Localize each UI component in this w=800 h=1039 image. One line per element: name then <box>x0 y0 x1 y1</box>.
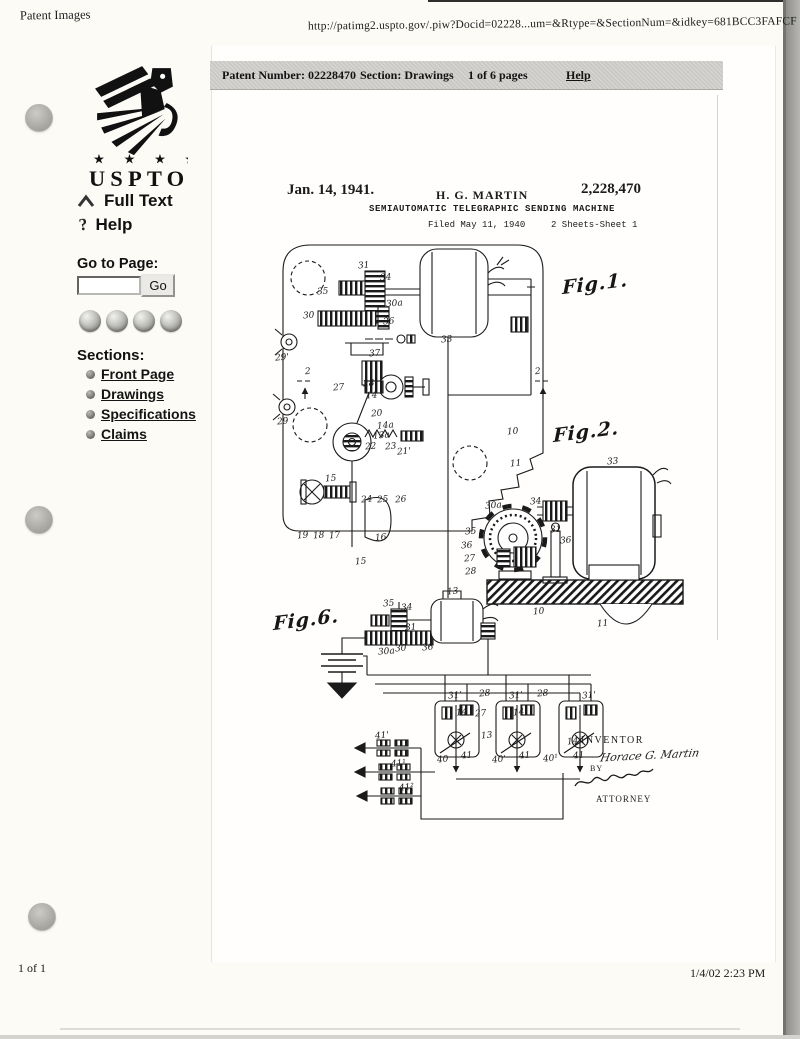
ref-numeral: 30a <box>386 298 404 309</box>
ref-numeral: 19 <box>297 531 309 542</box>
patent-number-label: Patent Number: 02228470 <box>222 68 356 83</box>
ref-numeral: 31' <box>509 690 524 701</box>
sheet-filed-line: Filed May 11, 1940 <box>428 220 525 230</box>
ref-numeral: 30a <box>485 500 503 511</box>
inventor-caption: INVENTOR <box>581 735 644 746</box>
ref-numeral: 18 <box>313 531 325 542</box>
caret-up-icon <box>76 193 96 209</box>
ref-numeral: 13 <box>481 731 493 742</box>
ref-numeral: 2 <box>535 367 542 377</box>
uspto-logo: ★ ★ ★ ★ USPTO <box>84 62 188 190</box>
ref-numeral: 10 <box>507 427 519 438</box>
nav-balls <box>79 310 182 332</box>
ref-numeral: 2 <box>305 367 312 377</box>
bullet-icon <box>86 410 95 419</box>
toolbar-help-link[interactable]: Help <box>566 68 591 83</box>
full-text-label: Full Text <box>104 191 173 211</box>
ref-numeral: 15 <box>325 474 337 485</box>
ref-numeral: 15 <box>355 557 367 568</box>
attorney-caption: ATTORNEY <box>596 794 651 804</box>
sidebar-item-specifications[interactable]: Specifications <box>86 406 196 422</box>
sections-heading: Sections: <box>77 347 145 364</box>
ref-numeral: 13a <box>373 430 391 441</box>
go-button[interactable]: Go <box>141 274 175 297</box>
ref-numeral: 40¹ <box>543 753 559 764</box>
ref-numeral: 34 <box>401 603 413 614</box>
ref-numeral: 36 <box>461 541 473 552</box>
ref-numeral: 13 <box>447 587 459 598</box>
ref-numeral: 33 <box>441 335 453 346</box>
sidebar-item-front-page[interactable]: Front Page <box>86 366 196 382</box>
ref-numeral: 41 <box>519 751 531 762</box>
sheet-title: SEMIAUTOMATIC TELEGRAPHIC SENDING MACHIN… <box>369 204 615 214</box>
patent-toolbar: Patent Number: 02228470 Section: Drawing… <box>210 61 723 90</box>
ref-numeral: 27 <box>333 383 345 394</box>
ref-numeral: 21' <box>397 446 412 457</box>
ref-numeral: 10 <box>533 607 545 618</box>
ref-numeral: 26 <box>395 495 407 506</box>
ref-numeral: 40' <box>492 754 507 765</box>
ref-numeral: 36 <box>560 536 572 547</box>
ref-numeral: 35 <box>317 287 329 298</box>
logo-text: USPTO <box>89 166 185 190</box>
ref-numeral: 22 <box>365 442 377 453</box>
sidebar-item-label: Front Page <box>101 366 174 382</box>
ref-numeral: 29' <box>275 352 290 363</box>
ref-numeral: 14 <box>567 737 579 748</box>
ref-numeral: 40 <box>437 755 449 766</box>
sheet-patent-number: 2,228,470 <box>581 181 641 198</box>
sidebar-help-label: Help <box>96 215 133 235</box>
sidebar-item-drawings[interactable]: Drawings <box>86 386 196 402</box>
scan-right-band <box>786 0 800 1039</box>
ref-numeral: 41 <box>461 751 473 762</box>
patent-image-viewer-page: Patent Images http://patimg2.uspto.gov/.… <box>0 0 800 1039</box>
bullet-icon <box>86 430 95 439</box>
bullet-icon <box>86 370 95 379</box>
punch-hole-top <box>25 104 53 132</box>
nav-ball-1-button[interactable] <box>79 310 101 332</box>
ref-numeral: 28 <box>537 689 549 700</box>
ref-numeral: 14 <box>366 391 378 402</box>
scan-top-edge <box>428 0 800 2</box>
drawing-annotations: INVENTOR BY Horace G. Martin ATTORNEY Fi… <box>215 235 775 835</box>
sidebar-help-link[interactable]: ? Help <box>79 215 132 235</box>
nav-ball-2-button[interactable] <box>106 310 128 332</box>
ref-numeral: 41¹ <box>391 758 407 769</box>
nav-ball-4-button[interactable] <box>160 310 182 332</box>
ref-numeral: 34 <box>530 497 542 508</box>
attorney-signature <box>575 769 653 786</box>
sheet-count-line: 2 Sheets-Sheet 1 <box>551 220 637 230</box>
print-timestamp: 1/4/02 2:23 PM <box>690 966 765 981</box>
ref-numeral: 28 <box>363 379 375 390</box>
sheet-date: Jan. 14, 1941. <box>287 182 374 199</box>
ref-numeral: 31' <box>448 690 463 701</box>
ref-numeral: 20 <box>371 409 383 420</box>
ref-numeral: 37 <box>369 349 381 360</box>
ref-numeral: 31 <box>405 623 417 634</box>
sheet-inventor-name: H. G. MARTIN <box>436 188 528 203</box>
goto-page-input[interactable] <box>77 276 141 295</box>
punch-hole-bottom <box>28 903 56 931</box>
full-text-link[interactable]: Full Text <box>76 191 173 211</box>
window-title-label: Patent Images <box>20 7 91 23</box>
address-url: http://patimg2.uspto.gov/.piw?Docid=0222… <box>308 15 797 32</box>
ref-numeral: 30 <box>303 311 315 322</box>
sidebar-item-label: Drawings <box>101 386 164 402</box>
ref-numeral: 23 <box>385 442 397 453</box>
print-page-count: 1 of 1 <box>18 961 46 976</box>
ref-numeral: 27 <box>464 554 476 565</box>
sidebar-item-label: Claims <box>101 426 147 442</box>
scan-bottom-band <box>0 1035 800 1039</box>
ref-numeral: 41² <box>399 782 415 793</box>
ref-numeral: 16 <box>375 533 387 544</box>
ref-numeral: 28 <box>479 689 491 700</box>
section-label: Section: Drawings <box>360 68 454 83</box>
ref-numeral: 36 <box>383 317 395 328</box>
nav-ball-3-button[interactable] <box>133 310 155 332</box>
ref-numeral: 31 <box>358 261 370 272</box>
sidebar-item-claims[interactable]: Claims <box>86 426 196 442</box>
eagle-icon <box>95 66 178 155</box>
ref-numeral: 30 <box>395 644 407 655</box>
bullet-icon <box>86 390 95 399</box>
ref-numeral: 14 <box>456 708 468 719</box>
page-count-label: 1 of 6 pages <box>468 68 528 83</box>
goto-page-label: Go to Page: <box>77 256 158 272</box>
ref-numeral: 25 <box>377 495 389 506</box>
punch-hole-middle <box>25 506 53 534</box>
ref-numeral: 29 <box>277 417 289 428</box>
ref-numeral: 33 <box>607 457 619 468</box>
ref-numeral: 27 <box>475 709 487 720</box>
ref-numeral: 41 <box>573 751 585 762</box>
ref-numeral: 30a <box>378 646 396 657</box>
sections-list: Front PageDrawingsSpecificationsClaims <box>86 366 196 442</box>
ref-numeral: 24 <box>361 495 373 506</box>
ref-numeral: 41' <box>375 730 390 741</box>
ref-numeral: 31 <box>550 525 562 536</box>
ref-numeral: 36 <box>422 643 434 654</box>
ref-numeral: 11 <box>510 459 522 470</box>
ref-numeral: 34 <box>380 273 392 284</box>
scan-bottom-streak <box>60 1028 740 1030</box>
ref-numeral: 11 <box>597 619 609 630</box>
by-label: BY <box>590 764 603 773</box>
ref-numeral: 31' <box>582 690 597 701</box>
ref-numeral: 35 <box>465 527 477 538</box>
ref-numeral: 14 <box>513 708 525 719</box>
question-mark-icon: ? <box>78 215 89 236</box>
ref-numeral: 35 <box>383 599 395 610</box>
sidebar-item-label: Specifications <box>101 406 196 422</box>
ref-numeral: 28 <box>465 567 477 578</box>
ref-numeral: 17 <box>329 531 341 542</box>
